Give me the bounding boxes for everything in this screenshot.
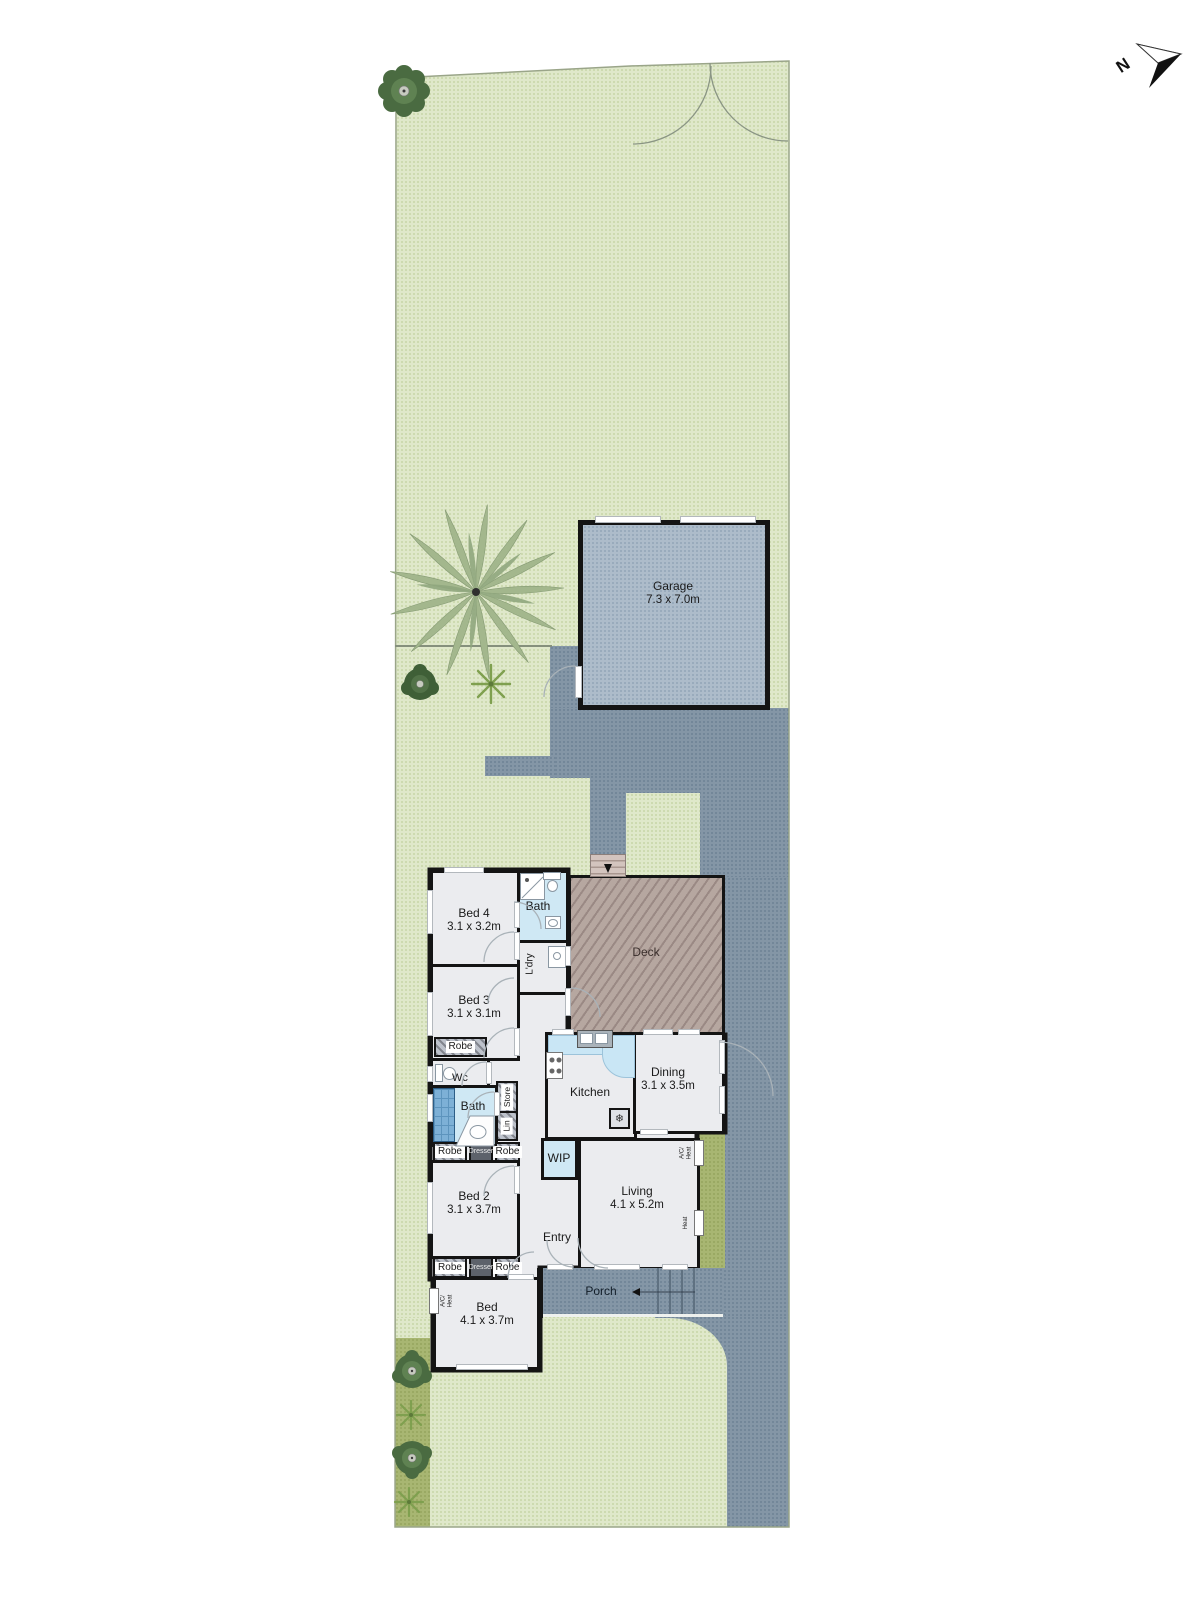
door-gap <box>719 1040 725 1074</box>
window <box>678 1029 700 1035</box>
heat-unit <box>694 1210 704 1236</box>
window <box>643 1029 673 1035</box>
window <box>456 1364 528 1370</box>
site-plan: Garage 7.3 x 7.0m Deck Robe Store Lin Ro… <box>0 0 1200 1600</box>
robe-bed2-left: Robe <box>433 1142 467 1162</box>
ac-heat-unit <box>429 1288 439 1314</box>
door-gap <box>486 1062 492 1084</box>
porch-edge-highlight <box>543 1314 723 1317</box>
robe-bed2-right: Robe <box>495 1142 520 1162</box>
robe-bed3: Robe <box>434 1037 487 1057</box>
ac-heat-label: A/C/ Heat <box>441 1295 454 1308</box>
bed2-label: Bed 23.1 x 3.7m <box>447 1189 501 1217</box>
robe-bed1-left: Robe <box>433 1257 467 1278</box>
window <box>565 946 571 966</box>
window <box>640 1129 668 1135</box>
kitchen-sink-icon <box>580 1033 593 1044</box>
dining-label: Dining3.1 x 3.5m <box>641 1065 695 1093</box>
door-gap <box>514 932 520 960</box>
toilet-icon <box>435 1064 443 1082</box>
porch-step-line <box>669 1268 671 1316</box>
door-gap <box>547 1264 573 1270</box>
house-footprint <box>0 0 1200 1600</box>
porch-label: Porch <box>585 1284 616 1298</box>
door-gap <box>508 1274 534 1280</box>
door-gap <box>514 1166 520 1194</box>
window <box>444 867 484 873</box>
cooktop-icon <box>546 1052 563 1079</box>
bed3-label: Bed 33.1 x 3.1m <box>447 993 501 1021</box>
window <box>662 1264 688 1270</box>
wall-segment <box>537 1268 543 1318</box>
basin-icon <box>548 919 558 927</box>
toilet-icon <box>547 880 558 892</box>
window <box>427 890 433 934</box>
entry-label: Entry <box>543 1230 571 1244</box>
shower-icon <box>433 1088 455 1142</box>
heat-label: Heat <box>683 1217 690 1230</box>
wc-label: Wc <box>452 1071 468 1085</box>
bed4-label: Bed 43.1 x 3.2m <box>447 906 501 934</box>
door-gap <box>565 988 571 1016</box>
ac-heat-unit <box>694 1140 704 1166</box>
door-gap <box>514 902 520 928</box>
door-gap <box>494 1092 500 1116</box>
window <box>427 992 433 1036</box>
window <box>719 1086 725 1114</box>
laundry-label: L'dry <box>525 953 536 974</box>
kitchen-label: Kitchen <box>570 1085 610 1099</box>
bed1-label: Bed4.1 x 3.7m <box>460 1300 514 1328</box>
door-gap <box>514 1028 520 1056</box>
dresser-bed2: Dresser <box>469 1142 493 1162</box>
shower-icon <box>520 873 545 900</box>
porch-step-line <box>681 1268 683 1316</box>
window <box>594 1264 640 1270</box>
window <box>427 1182 433 1234</box>
kitchen-sink-icon <box>595 1033 608 1044</box>
dresser-bed1: Dresser <box>469 1257 493 1278</box>
heater-unit: ❄ <box>609 1108 630 1129</box>
porch-area <box>543 1268 723 1316</box>
ac-heat-label: A/C/ Heat <box>680 1147 693 1160</box>
window <box>552 1029 574 1035</box>
window <box>427 1066 433 1082</box>
toilet-icon <box>543 872 561 880</box>
bath-upper-label: Bath <box>526 899 551 913</box>
window <box>427 1094 433 1122</box>
bath-main-label: Bath <box>461 1099 486 1113</box>
wip-label: WIP <box>548 1151 571 1165</box>
living-label: Living4.1 x 5.2m <box>610 1184 664 1212</box>
snowflake-icon: ❄ <box>615 1112 624 1125</box>
porch-step-line <box>693 1268 695 1316</box>
laundry-trough-icon <box>553 952 561 960</box>
porch-step-line <box>657 1268 659 1316</box>
